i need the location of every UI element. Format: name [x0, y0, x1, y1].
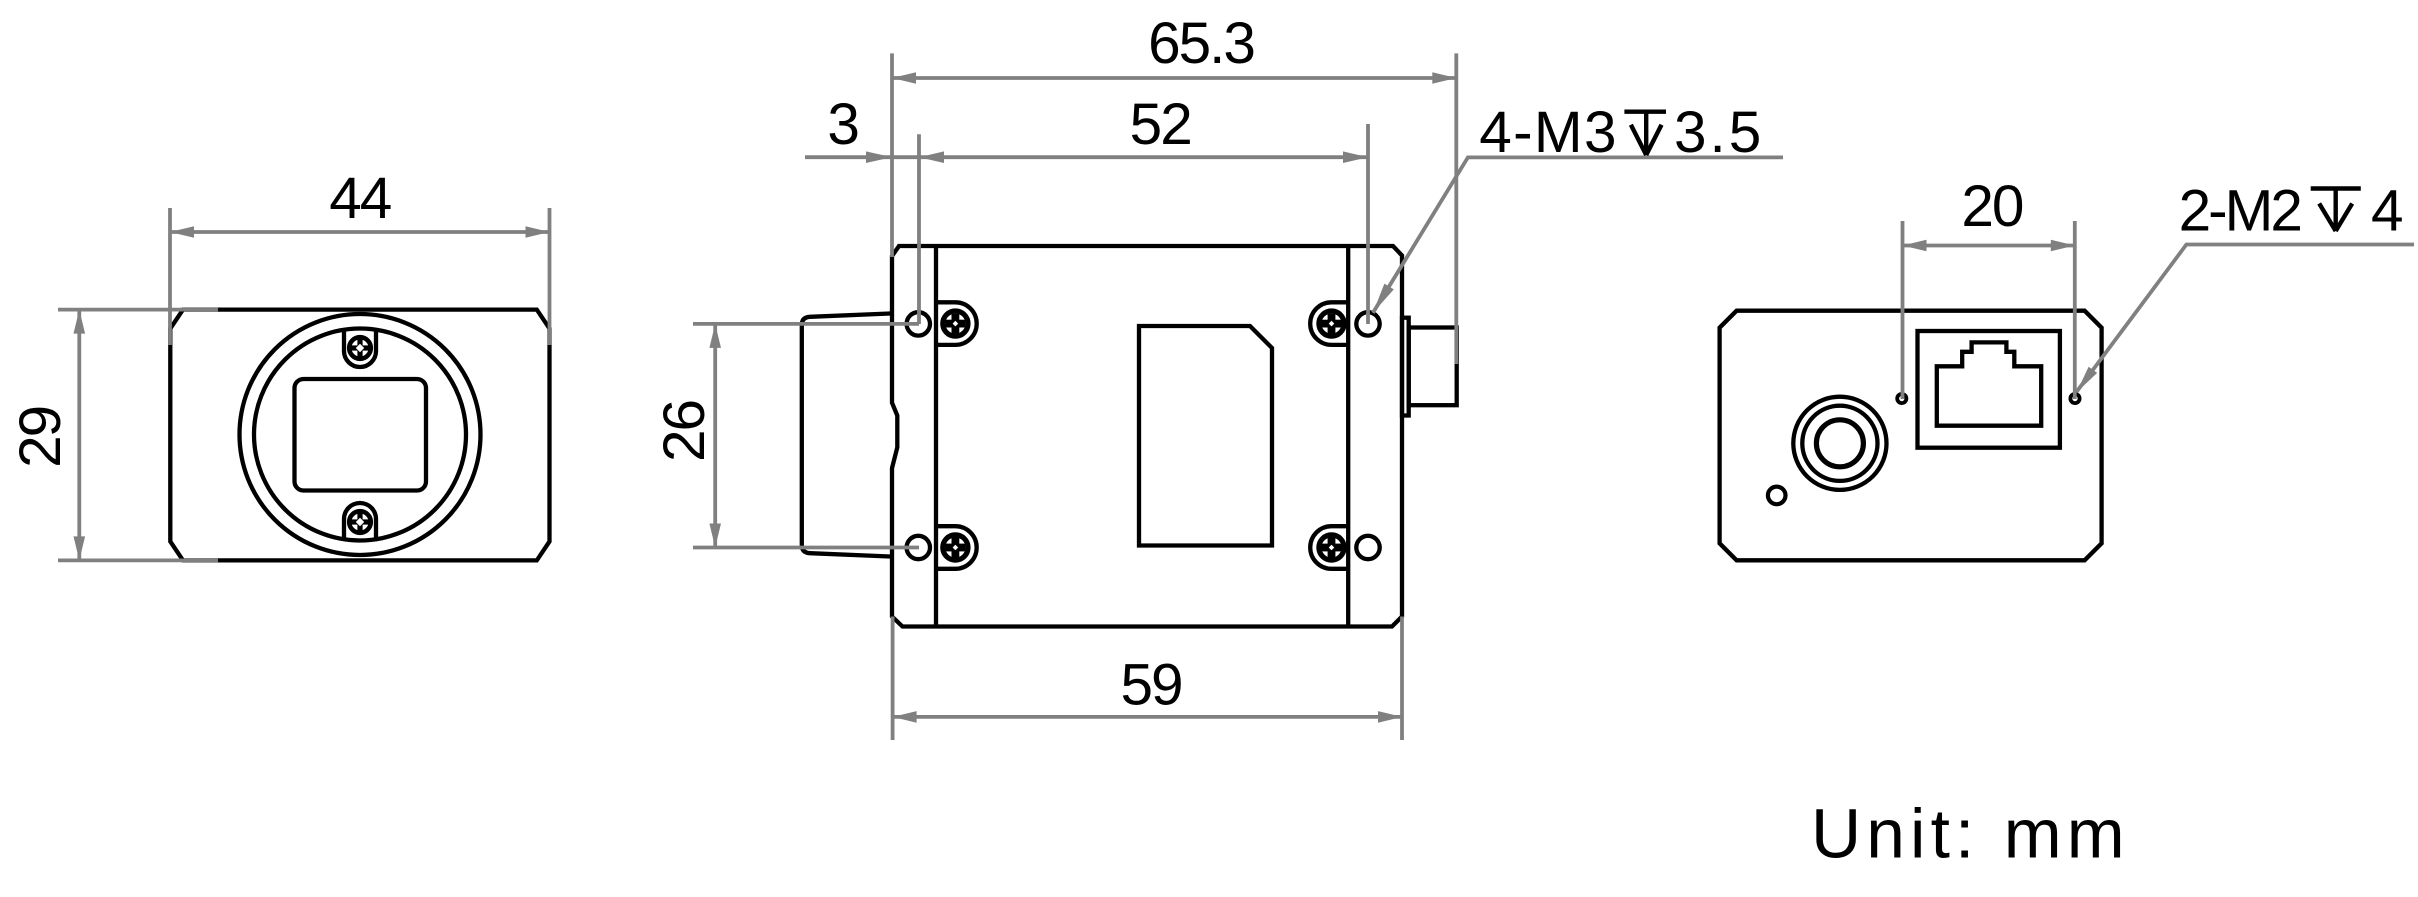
- svg-text:3: 3: [827, 92, 858, 157]
- svg-text:3.5: 3.5: [1674, 100, 1764, 165]
- svg-text:65.3: 65.3: [1148, 11, 1254, 76]
- svg-text:29: 29: [8, 407, 73, 468]
- svg-text:4: 4: [2371, 179, 2402, 244]
- svg-text:59: 59: [1120, 652, 1181, 717]
- svg-text:Unit: mm: Unit: mm: [1811, 795, 2130, 873]
- svg-text:20: 20: [1961, 174, 2023, 239]
- svg-text:44: 44: [329, 166, 391, 231]
- svg-text:52: 52: [1130, 92, 1191, 157]
- svg-text:2-M2: 2-M2: [2179, 179, 2301, 244]
- svg-text:4-M3: 4-M3: [1479, 100, 1617, 165]
- svg-text:26: 26: [652, 401, 717, 462]
